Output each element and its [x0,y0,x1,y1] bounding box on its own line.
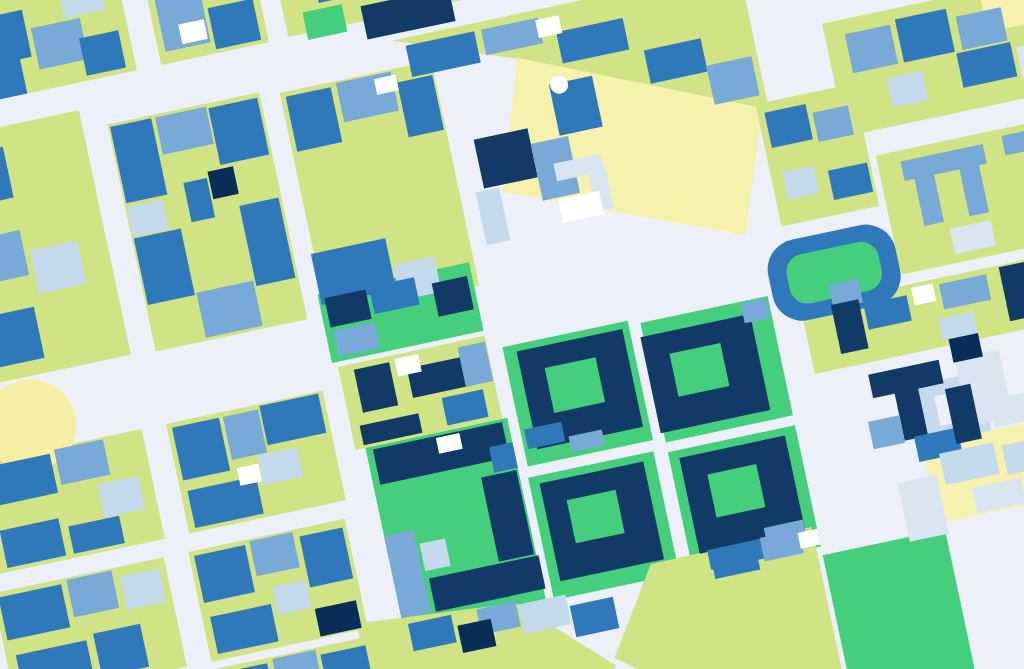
building [79,30,126,75]
map-canvas[interactable] [0,0,1024,669]
city-map [0,0,1024,669]
